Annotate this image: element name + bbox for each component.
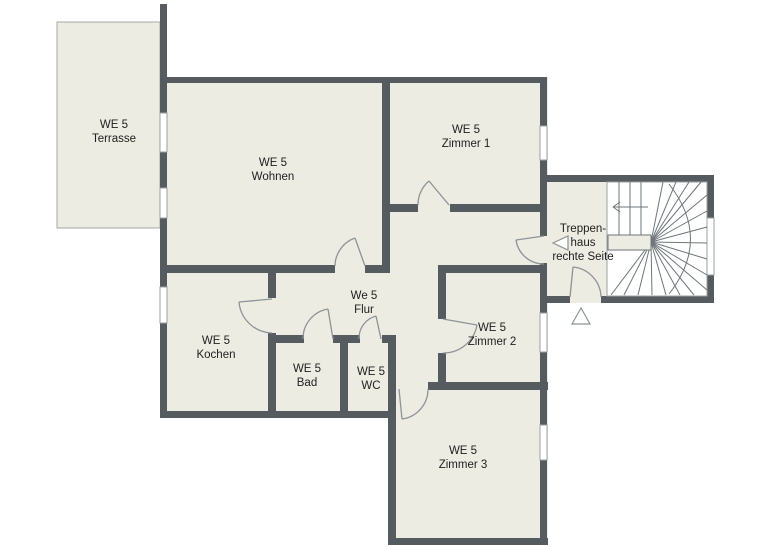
room-label-zimmer1: WE 5Zimmer 1 — [442, 123, 491, 151]
window — [707, 218, 714, 275]
room-label-wc: WE 5WC — [357, 365, 385, 393]
window — [160, 188, 167, 218]
room-label-zimmer3: WE 5Zimmer 3 — [439, 444, 488, 472]
staircase — [607, 182, 707, 296]
floor-plan-drawing — [0, 0, 768, 560]
stair-landing-bar — [608, 235, 651, 250]
room-label-zimmer2: WE 5Zimmer 2 — [468, 321, 517, 349]
room-label-flur: We 5Flur — [351, 289, 378, 317]
floor-plan-canvas: WE 5Terrasse WE 5Wohnen WE 5Zimmer 1 We … — [0, 0, 768, 560]
room-label-treppenhaus: Treppen-hausrechte Seite — [552, 222, 613, 264]
window — [160, 113, 167, 152]
window — [540, 425, 547, 460]
room-label-kochen: WE 5Kochen — [196, 334, 235, 362]
window — [160, 287, 167, 323]
room-label-wohnen: WE 5Wohnen — [252, 156, 295, 184]
window — [540, 126, 547, 160]
exit-triangle-icon — [572, 308, 590, 324]
room-label-terrasse: WE 5Terrasse — [92, 118, 136, 146]
room-label-bad: WE 5Bad — [293, 362, 321, 390]
window — [540, 313, 547, 352]
